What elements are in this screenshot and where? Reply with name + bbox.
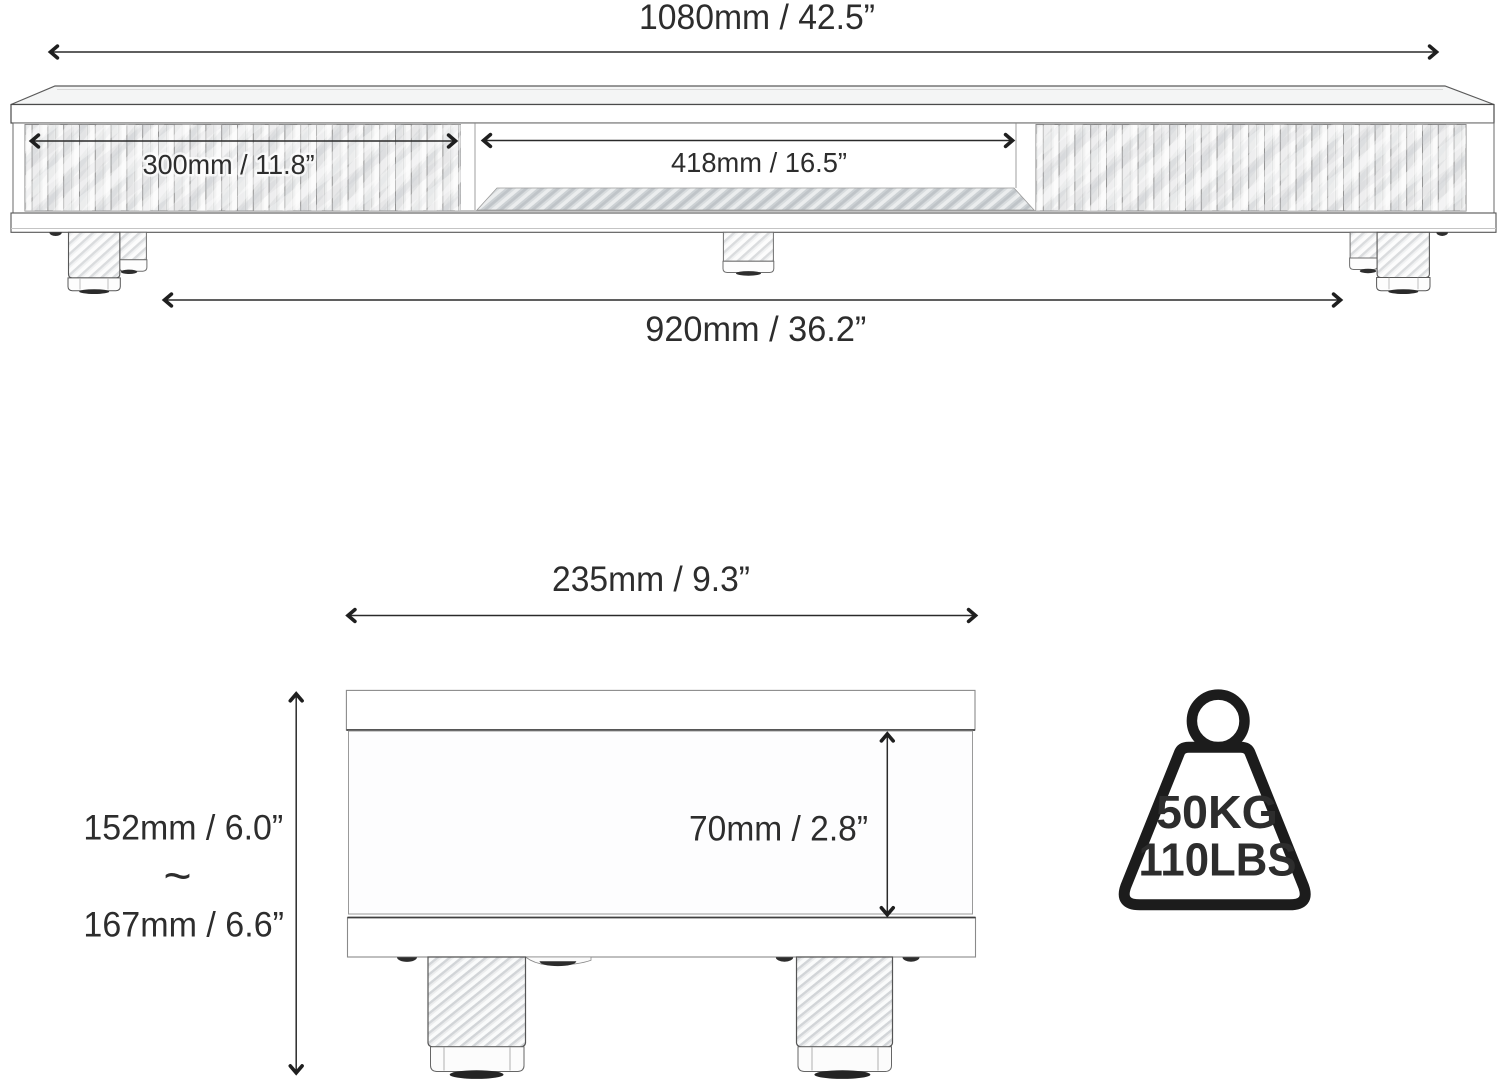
svg-text:235mm / 9.3”: 235mm / 9.3” (552, 560, 750, 599)
svg-text:1080mm / 42.5”: 1080mm / 42.5” (639, 0, 875, 37)
svg-text:152mm / 6.0”: 152mm / 6.0” (83, 809, 283, 848)
svg-text:50KG: 50KG (1156, 786, 1278, 838)
svg-text:167mm / 6.6”: 167mm / 6.6” (83, 906, 284, 945)
svg-text:920mm / 36.2”: 920mm / 36.2” (645, 310, 866, 349)
svg-text:~: ~ (163, 850, 191, 903)
svg-text:418mm / 16.5”: 418mm / 16.5” (671, 147, 847, 178)
svg-text:70mm / 2.8”: 70mm / 2.8” (689, 810, 868, 849)
svg-text:300mm / 11.8”: 300mm / 11.8” (143, 149, 315, 180)
svg-text:110LBS: 110LBS (1139, 834, 1297, 886)
